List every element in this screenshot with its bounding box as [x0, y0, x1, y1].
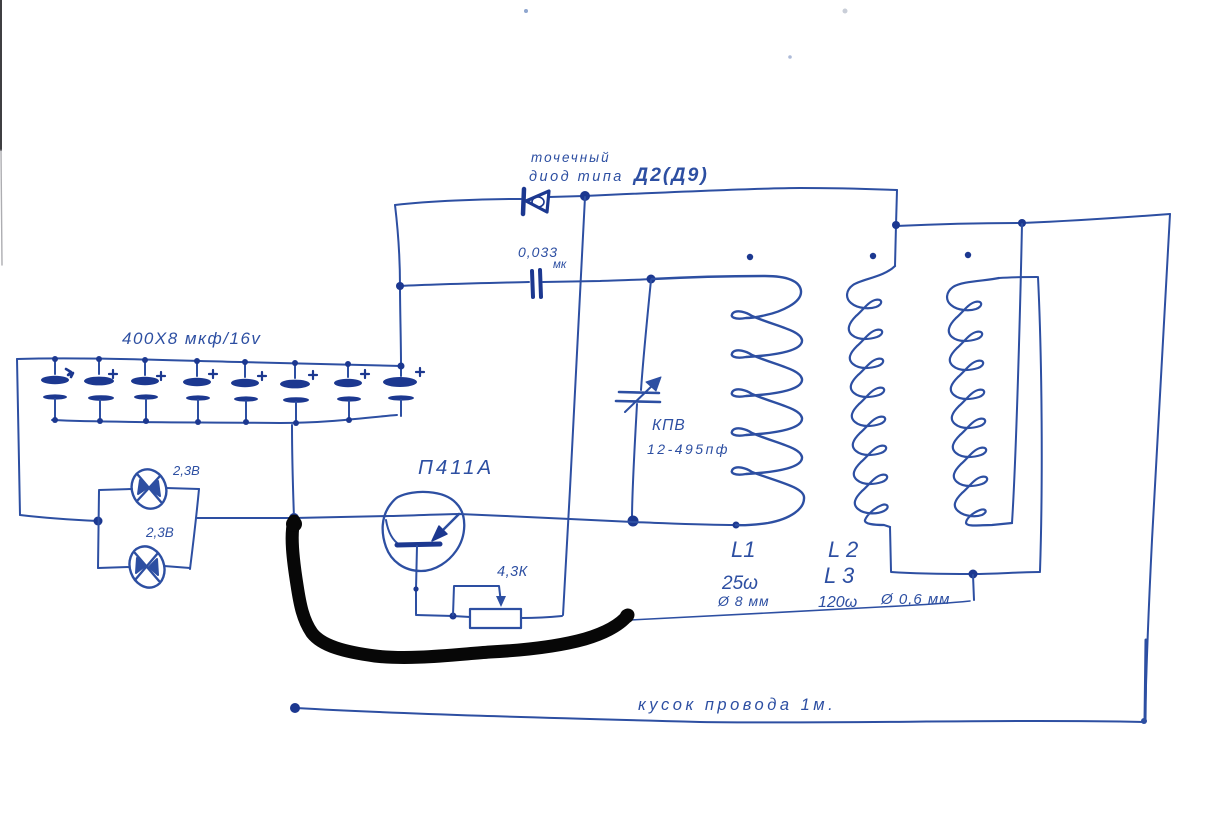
svg-text:Ø 8 мм: Ø 8 мм — [717, 593, 770, 609]
svg-text:мк: мк — [553, 259, 567, 271]
svg-text:0,033: 0,033 — [518, 244, 558, 260]
svg-text:4,3К: 4,3К — [497, 564, 529, 580]
svg-text:L 3: L 3 — [824, 563, 855, 588]
svg-text:диод типа: диод типа — [529, 169, 624, 185]
svg-text:400X8 мкф/16v: 400X8 мкф/16v — [122, 329, 261, 348]
svg-text:2,3В: 2,3В — [172, 463, 200, 478]
svg-text:L1: L1 — [731, 537, 755, 562]
svg-text:Д2(Д9): Д2(Д9) — [632, 164, 709, 186]
svg-text:120ω: 120ω — [818, 594, 857, 611]
svg-text:точечный: точечный — [531, 150, 611, 165]
svg-text:25ω: 25ω — [721, 573, 758, 594]
svg-text:2,3В: 2,3В — [145, 525, 174, 540]
svg-text:КПВ: КПВ — [652, 417, 686, 434]
svg-text:12-495пф: 12-495пф — [647, 441, 730, 457]
svg-text:L 2: L 2 — [828, 537, 858, 562]
svg-text:Ø 0,6 мм: Ø 0,6 мм — [880, 591, 950, 608]
svg-text:П411А: П411А — [418, 456, 494, 479]
svg-text:кусок провода 1м.: кусок провода 1м. — [638, 696, 836, 714]
